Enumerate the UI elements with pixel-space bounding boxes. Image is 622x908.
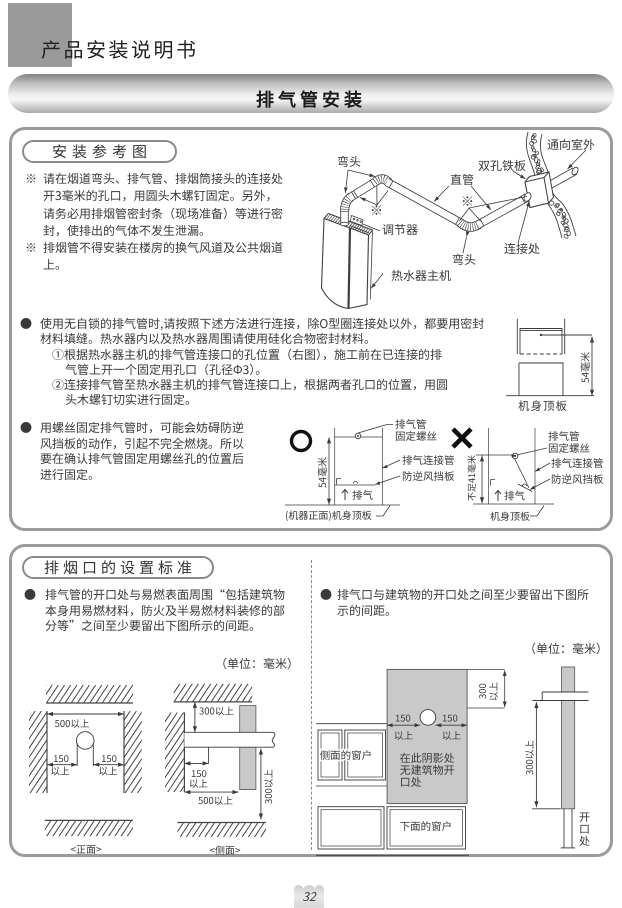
svg-text:直管: 直管 (450, 171, 474, 188)
svg-text:热水器主机: 热水器主机 (391, 267, 451, 284)
svg-text:通向室外: 通向室外 (547, 136, 595, 153)
svg-text:处: 处 (579, 833, 590, 849)
svg-text:固定螺丝: 固定螺丝 (548, 441, 590, 456)
svg-text:排气: 排气 (504, 489, 525, 504)
svg-text:双孔铁板: 双孔铁板 (478, 157, 526, 174)
svg-text:※: ※ (370, 200, 383, 219)
svg-text:弯头: 弯头 (337, 153, 361, 170)
svg-text:调节器: 调节器 (382, 221, 418, 238)
svg-text:以上: 以上 (442, 728, 462, 742)
svg-text:连接处: 连接处 (504, 240, 540, 257)
svg-text:排气连接管: 排气连接管 (551, 456, 604, 471)
svg-text:(机器正面)机身顶板: (机器正面)机身顶板 (285, 507, 372, 522)
svg-text:弯头: 弯头 (452, 251, 476, 268)
svg-text:口处: 口处 (400, 774, 422, 790)
svg-text:500以上: 500以上 (198, 793, 233, 807)
svg-text:54毫米: 54毫米 (314, 457, 329, 488)
svg-text:以上: 以上 (486, 682, 500, 702)
svg-text:以上: 以上 (394, 728, 414, 742)
svg-text:300以上: 300以上 (261, 769, 275, 804)
svg-text:300以上: 300以上 (522, 740, 536, 775)
svg-text:<正面>: <正面> (70, 841, 102, 856)
svg-text:以上: 以上 (189, 776, 209, 790)
svg-text:固定螺丝: 固定螺丝 (395, 429, 437, 444)
svg-text:排气: 排气 (352, 488, 373, 503)
svg-text:500以上: 500以上 (55, 716, 90, 730)
svg-text:<侧面>: <侧面> (209, 842, 241, 857)
svg-text:※: ※ (461, 191, 474, 210)
svg-text:32: 32 (302, 887, 317, 905)
svg-text:150: 150 (442, 711, 458, 725)
svg-text:侧面的窗户: 侧面的窗户 (320, 748, 373, 763)
svg-text:300以上: 300以上 (199, 704, 234, 718)
svg-text:不足41毫米: 不足41毫米 (465, 455, 478, 501)
svg-text:机身顶板: 机身顶板 (518, 398, 568, 414)
svg-text:防逆风挡板: 防逆风挡板 (551, 472, 604, 487)
svg-text:54毫米: 54毫米 (577, 352, 592, 383)
svg-text:150: 150 (395, 711, 411, 725)
svg-text:机身顶板: 机身顶板 (490, 508, 530, 523)
svg-text:排气连接管: 排气连接管 (402, 453, 455, 468)
svg-text:以上: 以上 (50, 764, 70, 778)
svg-text:下面的窗户: 下面的窗户 (400, 819, 453, 834)
svg-text:以上: 以上 (98, 764, 118, 778)
